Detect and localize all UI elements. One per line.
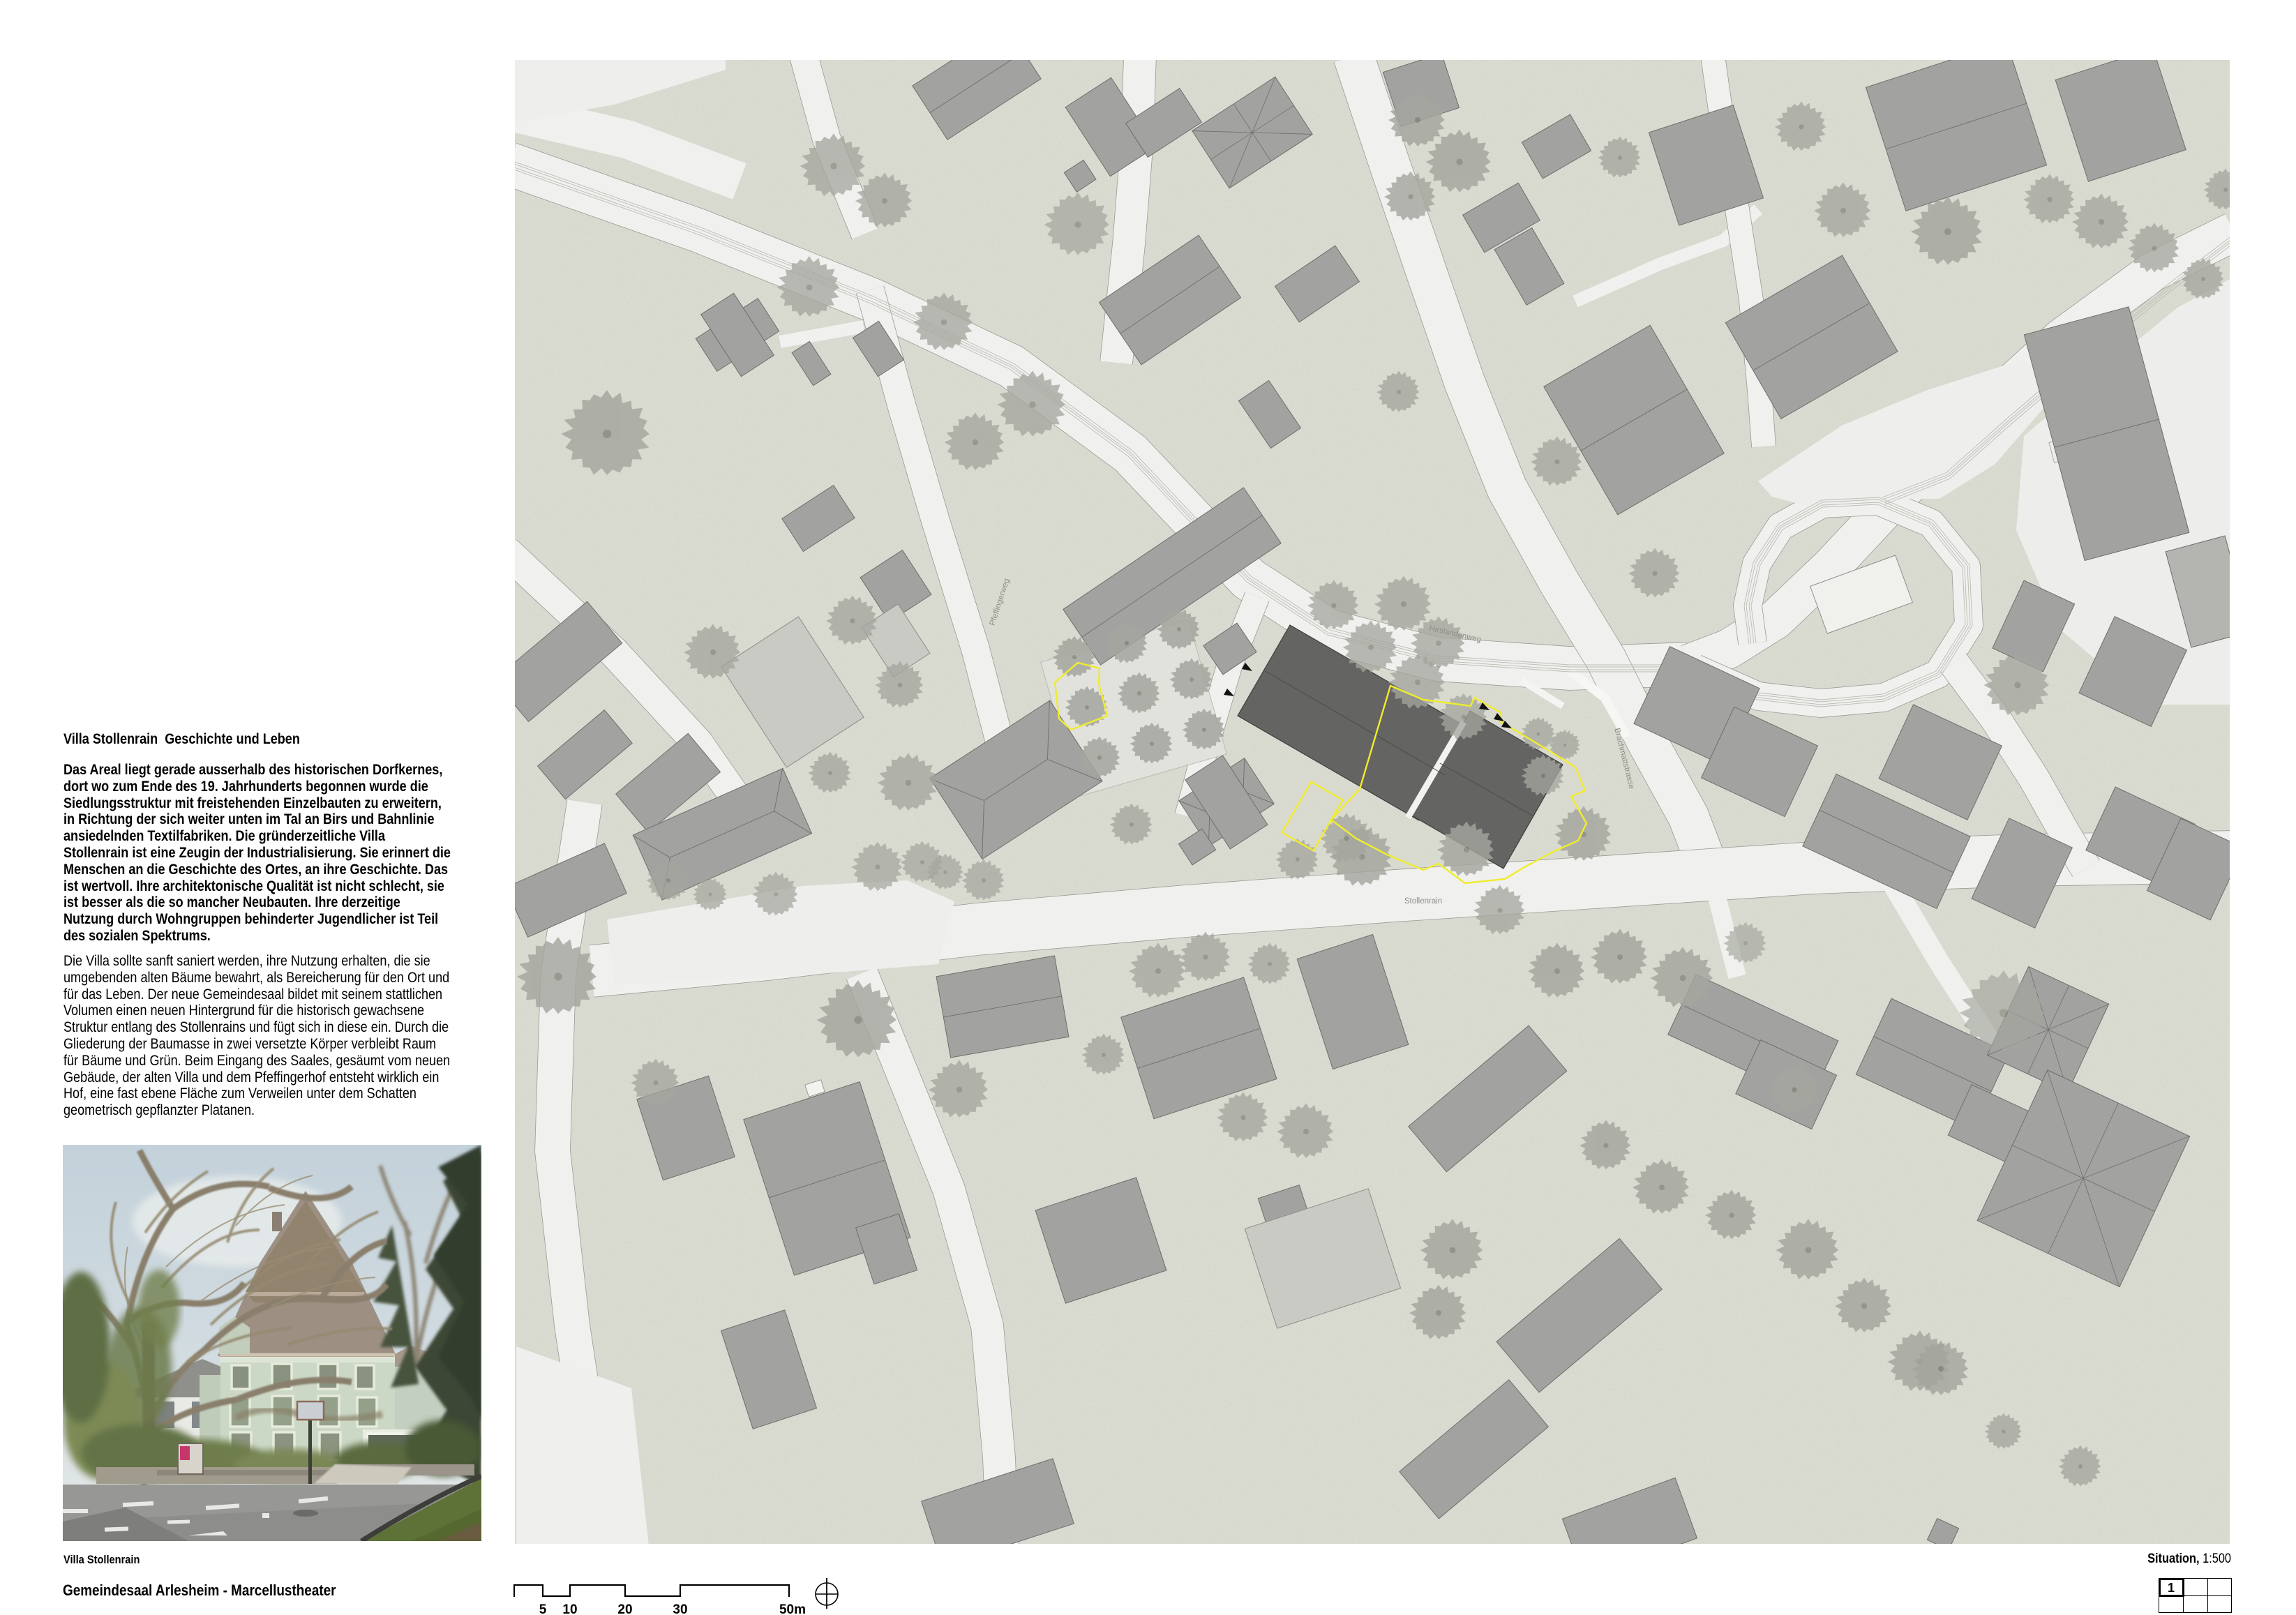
svg-text:5: 5 xyxy=(539,1602,547,1615)
svg-text:1: 1 xyxy=(2168,1581,2175,1595)
svg-text:50m: 50m xyxy=(779,1602,806,1615)
svg-text:30: 30 xyxy=(673,1602,687,1615)
svg-text:Stollenrain: Stollenrain xyxy=(1404,897,1442,906)
svg-text:20: 20 xyxy=(617,1602,632,1615)
svg-text:10: 10 xyxy=(562,1602,577,1615)
